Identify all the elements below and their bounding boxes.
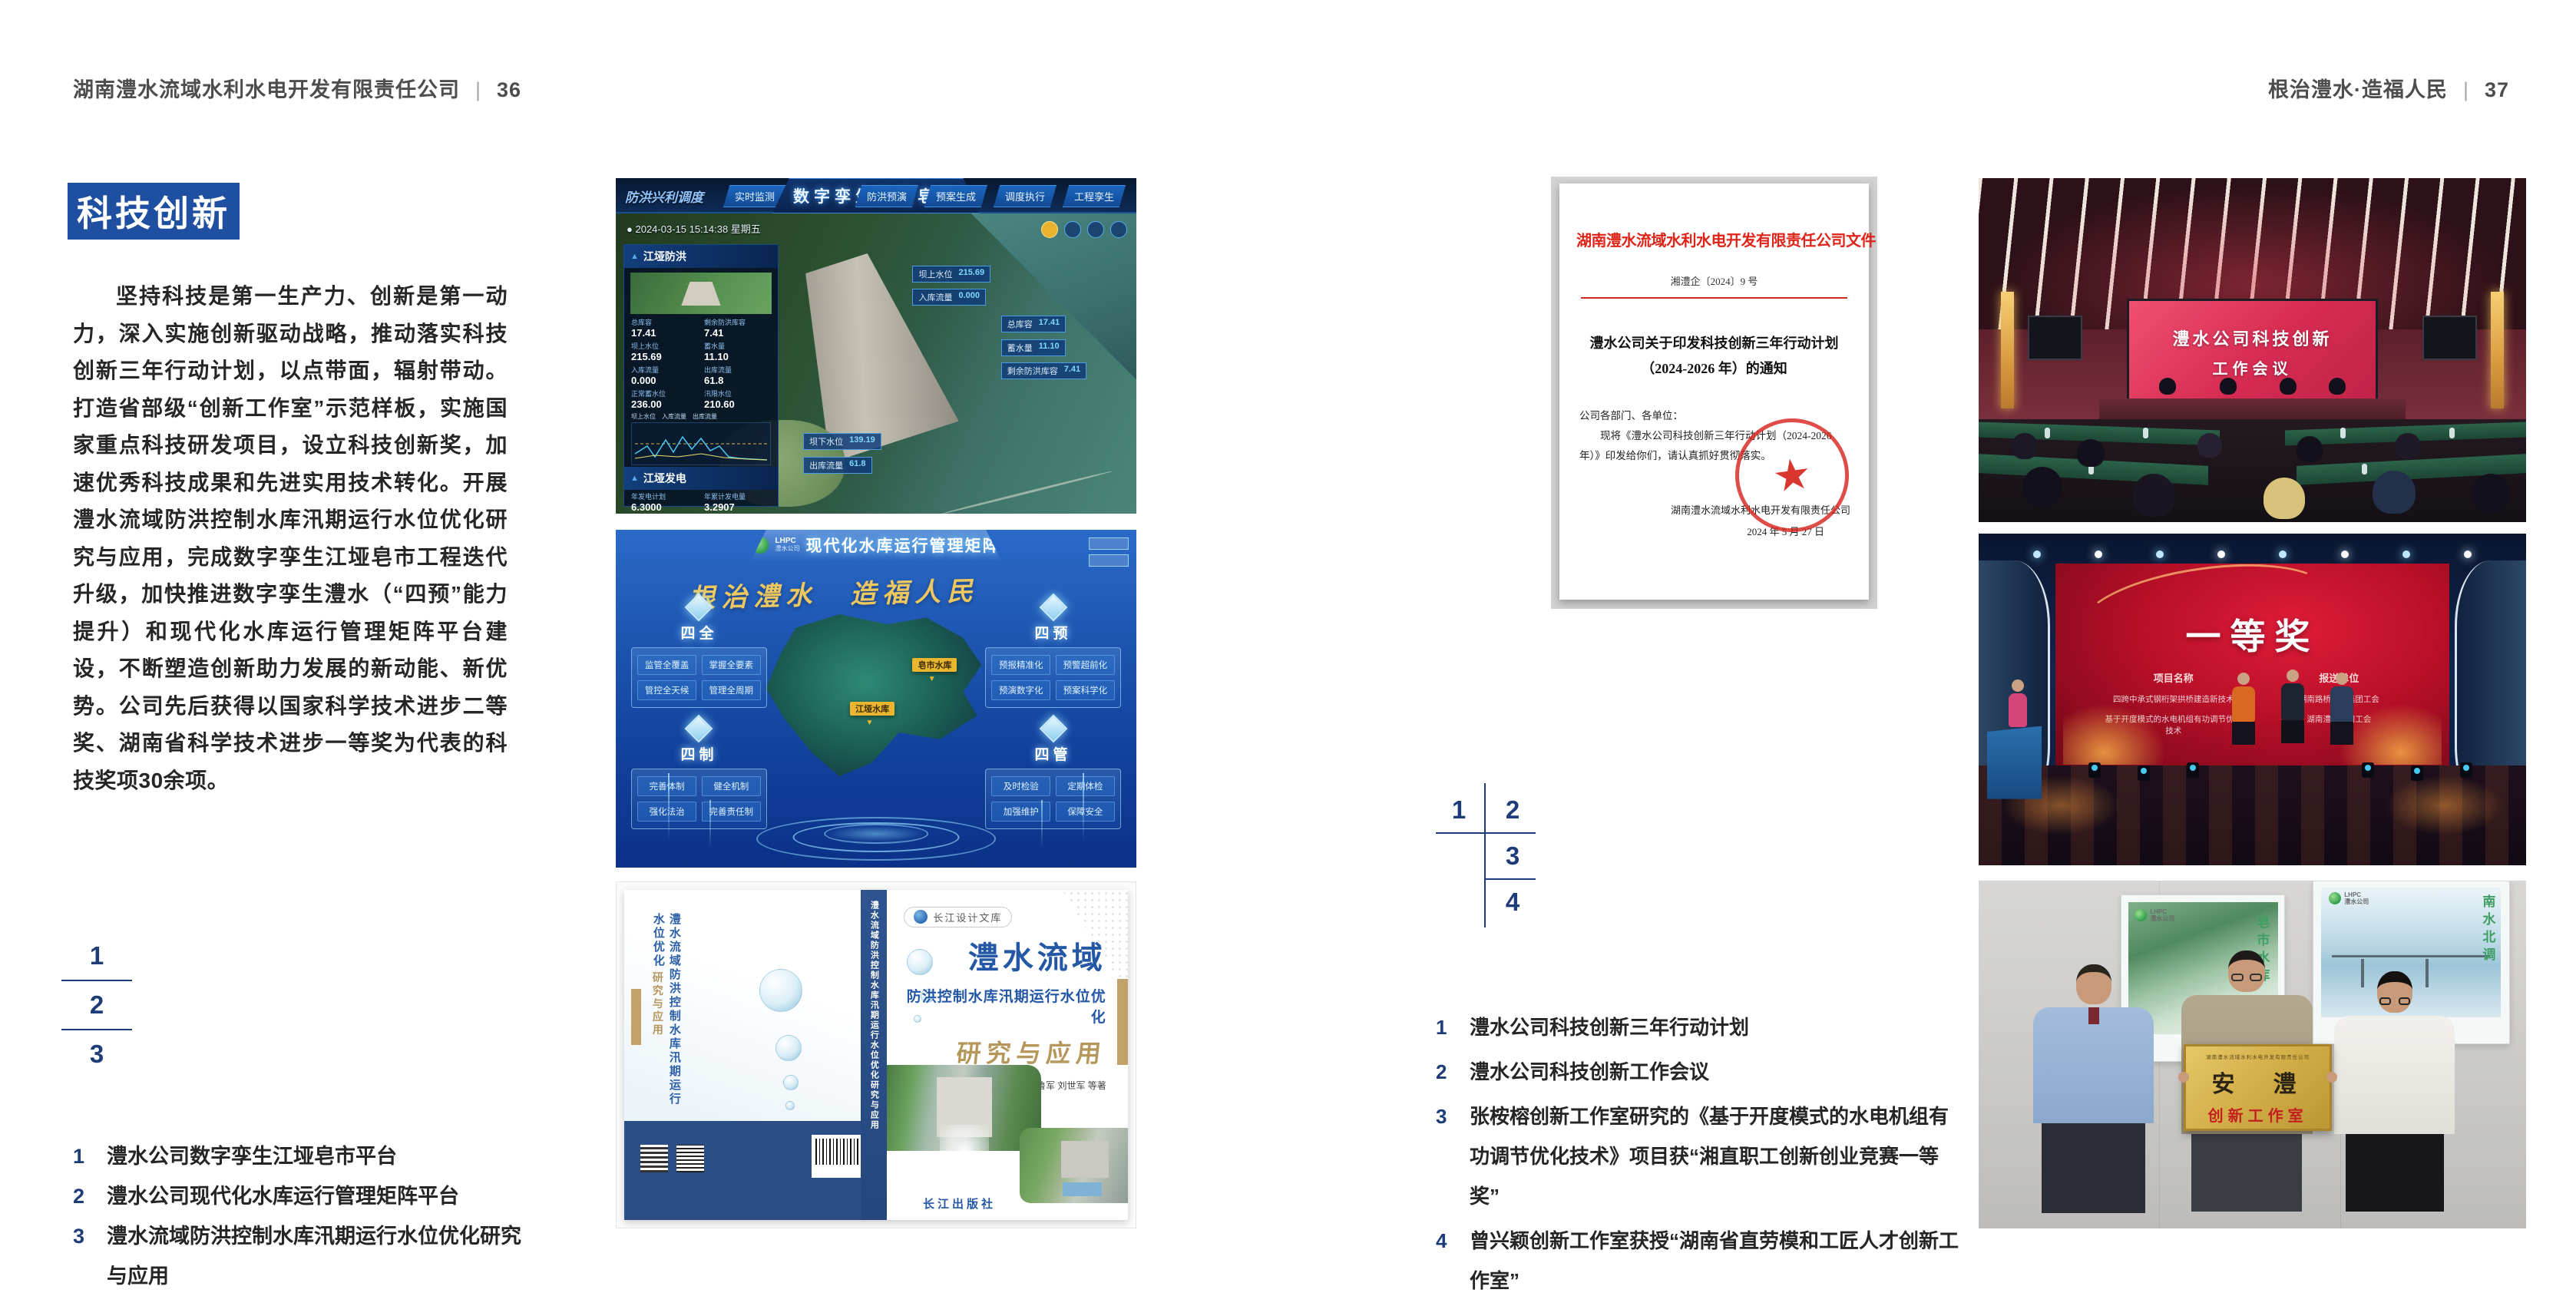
right-page-header: 根治澧水·造福人民|37 [2268,73,2509,103]
host-podium [1987,726,2042,799]
book-spine: 澧水流域防洪控制水库汛期运行水位优化研究与应用 [861,890,887,1220]
left-page-header: 湖南澧水流域水利水电开发有限责任公司|36 [73,73,521,103]
caption-number: 1 [1436,1007,1470,1047]
matrix-group-sizhi: 四制 完善体制 健全机制 强化法治 完善责任制 [631,719,766,829]
audience-head [2012,433,2038,459]
legend-item: 坝上水位 [631,412,656,421]
column-header: 项目名称 [2102,670,2244,685]
group-panel: 完善体制 健全机制 强化法治 完善责任制 [631,769,766,829]
person-left [2033,964,2154,1228]
plaque-name: 安 澧 [2186,1065,2330,1099]
lit-pillar [2001,292,2014,408]
light-pillar [709,800,711,848]
stat-cell: 汛限水位210.60 [704,388,771,410]
toolbar-icons [1041,221,1127,238]
awardee-head [2336,673,2348,685]
publisher-logo: 长江出版社 [887,1195,1031,1212]
matrix-header-plate: LHPC 澧水公司 现代化水库运行管理矩阵 [751,530,1000,560]
left-figure-number-key: 1 2 3 [61,941,132,1069]
bubble-decoration [785,1101,795,1110]
dashboard-timestamp: ● 2024-03-15 15:14:38 星期五 [627,221,761,236]
header-button [1089,537,1129,550]
flood-panel-title: 江垭防洪 [643,249,686,264]
power-panel-title: 江垭发电 [643,471,686,486]
brochure-spread: 湖南澧水流域水利水电开发有限责任公司|36 根治澧水·造福人民|37 科技创新 … [0,0,2576,1306]
page-number-36: 36 [497,78,521,101]
stat-cell: 坝上水位215.69 [631,341,698,362]
light-pillar [1083,773,1084,841]
stat-cell: 出库流量61.8 [704,365,771,386]
caption-text: 澧水公司科技创新工作会议 [1470,1052,1709,1092]
lhpc-logo-icon [2329,892,2341,904]
caption-number: 3 [73,1216,107,1296]
caption-text: 曾兴颖创新工作室获授“湖南省直劳模和工匠人才创新工作室” [1470,1221,1966,1301]
back-title-sub: 研究与应用 [652,972,664,1037]
document-page: 湖南澧水流域水利水电开发有限责任公司文件 湘澧企〔2024〕9 号 澧水公司关于… [1559,184,1869,600]
spotlight-fixture [2138,765,2150,781]
figure-divider [61,980,132,981]
water-level-mini-chart [631,422,771,465]
glasses-icon [2231,974,2244,981]
stat-cell: 总库容17.41 [631,317,698,339]
mode-label: 防洪兴利调度 [625,187,703,206]
info-chip: 入库流量0.000 [912,289,986,306]
spotlight-fixture [2088,762,2101,778]
lhpc-logo-text: LHPC 澧水公司 [775,537,800,553]
group-item: 管理全周期 [702,680,761,700]
wall-tv [2028,316,2082,360]
group-item: 及时检验 [991,776,1050,796]
spotlight-fixture [2187,762,2199,778]
screen-gold-glow [2063,703,2165,765]
page-number-37: 37 [2485,78,2509,101]
legend-item: 入库流量 [662,412,686,421]
floor-glow [2384,775,2505,835]
audience-head [2395,433,2421,459]
caption-row: 2 澧水公司现代化水库运行管理矩阵平台 [73,1176,541,1216]
document-red-rule [1581,297,1847,299]
glasses-icon [2250,974,2262,981]
pin-icon: ▼ [865,719,873,727]
person-right-pants [2346,1134,2445,1212]
group-item: 预演数字化 [991,680,1050,700]
series-logo-icon [914,910,928,924]
caption-text: 澧水公司数字孪生江垭皂市平台 [107,1136,397,1176]
group-item: 保障安全 [1056,802,1115,822]
audience-head [2264,478,2305,519]
right-figure-number-key: 1 2 3 4 [1436,783,1559,933]
lhpc-logo: LHPC澧水公司 [2329,891,2369,905]
bubble-decoration [759,969,802,1012]
glasses-icon [2399,997,2410,1005]
person-left-shirt [2033,1007,2154,1123]
person-center-pants [2191,1134,2302,1212]
bubble-decoration [775,1035,802,1061]
group-item: 预案科学化 [1056,680,1115,700]
figure-number: 1 [1443,795,1474,825]
stat-cell: 蓄水量11.10 [704,341,771,362]
caption-row: 2 澧水公司科技创新工作会议 [1436,1052,1966,1092]
book-cover-photo: 澧水流域防洪控制水库汛期运行水位优化 研究与应用 澧水流域防洪控制水库汛期运行水… [616,881,1136,1228]
back-cover-title: 澧水流域防洪控制水库汛期运行水位优化 研究与应用 [650,913,683,1111]
flood-stats-grid: 总库容17.41 剩余防洪库容7.41 坝上水位215.69 蓄水量11.10 … [624,317,778,410]
awardee-body [2330,686,2353,722]
figure-number: 3 [1497,841,1528,871]
stage-light [2156,551,2164,558]
group-item: 定期体检 [1056,776,1115,796]
host-head [2012,679,2024,692]
audience-head [2022,467,2062,507]
person-left-pants [2042,1123,2145,1213]
cover-powerhouse-photo [1020,1128,1128,1204]
matrix-group-siguan: 四管 及时检验 定期体检 加强维护 保障安全 [985,719,1120,829]
info-chip: 剩余防洪库容7.41 [1001,362,1086,379]
audience-head [2197,433,2222,458]
header-separator: | [2463,78,2469,101]
digital-twin-dashboard-photo: 防洪兴利调度 实时监测 洪水预报 防洪预警 数字孪生江垭皂市 防洪预演 预案生成… [616,178,1136,514]
dot-icon: ● [627,223,633,235]
seal-star-icon: ★ [1770,448,1815,503]
panel-icon: ▲ [630,474,639,483]
light-pillar [1041,800,1043,848]
presenter-suit [2280,670,2306,743]
person-right [2334,971,2455,1228]
stage-light [2217,551,2225,558]
wall-tv [2422,316,2477,360]
caption-text: 澧水公司科技创新三年行动计划 [1470,1007,1749,1047]
spotlight-fixture [2362,762,2374,778]
audience-head [2132,474,2175,517]
flood-panel-header: ▲ 江垭防洪 [624,245,778,268]
slogan: 根治澧水·造福人民 [2268,78,2448,101]
stage-light [2279,551,2287,558]
caption-number: 3 [1436,1096,1470,1216]
stage-light [2464,551,2472,558]
caption-text: 澧水公司现代化水库运行管理矩阵平台 [107,1176,459,1216]
group-panel: 预报精准化 预警超前化 预演数字化 预案科学化 [985,647,1120,708]
group-title: 四全 [631,622,766,643]
stage-light [2033,551,2041,558]
qr-code [676,1145,704,1172]
caption-number: 2 [73,1176,107,1216]
info-chip: 出库流量61.8 [803,457,871,474]
front-cover-tan-bar [1117,979,1128,1065]
tab-flood-rehearsal: 防洪预演 [855,185,918,207]
audience-head [2472,474,2510,512]
presenter-legs [2281,720,2304,743]
meeting-photo: 澧水公司科技创新 工作会议 [1979,178,2526,522]
presidium-person [2159,378,2176,395]
group-icon [1039,715,1067,743]
stat-cell: 正常蓄水位236.00 [631,388,698,410]
layers-icon [1064,221,1081,238]
locate-icon [1087,221,1104,238]
awardee-body [2232,686,2255,722]
info-chip: 蓄水量11.10 [1001,339,1066,356]
stage-floor [1979,765,2526,865]
host-person [2006,679,2029,727]
tab-project-twin: 工程孪生 [1063,185,1126,207]
awardee-legs [2330,722,2353,745]
group-item: 掌握全要素 [702,655,761,675]
stat-cell: 年发电计划6.3000 [631,491,698,513]
caption-row: 3 澧水流域防洪控制水库汛期运行水位优化研究与应用 [73,1216,541,1296]
alarm-icon [1110,221,1127,238]
lhpc-logo-label: LHPC澧水公司 [2344,891,2369,905]
group-icon [685,715,713,743]
header-separator: | [475,78,481,101]
stat-cell: 剩余防洪库容7.41 [704,317,771,339]
chart-legend: 坝上水位 入库流量 出库流量 [624,410,778,421]
group-icon [1039,593,1067,622]
info-chip: 总库容17.41 [1001,316,1066,332]
screen-line2: 工作会议 [2212,356,2292,379]
matrix-platform-photo: LHPC 澧水公司 现代化水库运行管理矩阵 根治澧水 造福人民 皂市水库 ▼ 江… [616,530,1136,868]
tab-realtime-monitoring: 实时监测 [723,185,786,207]
caption-row: 1 澧水公司科技创新三年行动计划 [1436,1007,1966,1047]
power-stats-grid: 年发电计划6.3000 年累计发电量3.2907 月累计发电量3259.21 当… [624,490,778,514]
series-name: 长江设计文库 [933,910,1002,924]
spotlight-fixture [2411,765,2423,781]
figure-number: 2 [1497,795,1528,825]
award-ceremony-photo: 一等奖 项目名称 四跨中承式钢桁架拱桥建造新技术 基于开度模式的水电机组有功调节… [1979,534,2526,865]
back-cover-tan-block [631,989,640,1045]
group-item: 预警超前化 [1056,655,1115,675]
figure-divider-vertical [1484,783,1486,927]
tab-dispatch-execution: 调度执行 [994,185,1057,207]
document-title-line2: （2024-2026 年）的通知 [1576,356,1852,382]
group-title: 四制 [631,743,766,764]
document-title-line1: 澧水公司关于印发科技创新三年行动计划 [1576,331,1852,356]
matrix-group-siyu: 四预 预报精准化 预警超前化 预演数字化 预案科学化 [985,597,1120,708]
stage-light [2341,551,2349,558]
poster-right-title: 南水北调 [2478,894,2497,965]
figure-divider [1436,832,1536,834]
bubble-decoration [783,1075,799,1090]
book-spread: 澧水流域防洪控制水库汛期运行水位优化 研究与应用 澧水流域防洪控制水库汛期运行水… [624,890,1128,1220]
document-title: 澧水公司关于印发科技创新三年行动计划 （2024-2026 年）的通知 [1576,331,1852,382]
screen-line1: 澧水公司科技创新 [2172,326,2332,350]
thumbnail-dam-shape [681,282,721,306]
person-left-collar [2088,1007,2099,1024]
lhpc-logo: LHPC澧水公司 [2135,908,2174,922]
awardee-legs [2232,722,2255,745]
group-title: 四预 [985,622,1120,643]
group-panel: 及时检验 定期体检 加强维护 保障安全 [985,769,1120,829]
spotlight-fixture [2460,762,2472,778]
audience-head [2297,436,2323,462]
stage-light [2402,551,2410,558]
timestamp-text: 2024-03-15 15:14:38 星期五 [635,223,760,235]
bridge-deck [2332,955,2490,957]
caption-number: 4 [1436,1221,1470,1301]
book-title-line3: 研究与应用 [892,1034,1108,1070]
caption-text: 澧水流域防洪控制水库汛期运行水位优化研究与应用 [107,1216,541,1296]
book-title-line1: 澧水流域 [894,933,1106,977]
user-icon [1041,221,1058,238]
glasses-icon [2379,997,2391,1005]
water-bottle [2143,428,2148,438]
person-right-shirt [2334,1016,2455,1134]
water-bottle [2449,428,2455,438]
figure-divider [1484,878,1536,880]
water-bottle [2340,428,2346,438]
pin-icon: ▼ [928,675,936,683]
water-bottle [2045,428,2050,438]
caption-row: 4 曾兴颖创新工作室获授“湖南省直劳模和工匠人才创新工作室” [1436,1221,1966,1301]
hand [2326,1072,2337,1083]
group-item: 强化法治 [637,802,696,822]
group-item: 管控全天候 [637,680,696,700]
map-label-jiangya: 江垭水库 [850,702,894,716]
presenter-body [2281,683,2304,720]
caption-row: 1 澧水公司数字孪生江垭皂市平台 [73,1136,541,1176]
lhpc-logo-label: LHPC澧水公司 [2150,908,2174,922]
plaque-photo: LHPC澧水公司 皂市水库 LHPC澧水公司 南水北调 [1979,881,2526,1228]
award-title: 一等奖 [2055,609,2449,660]
section-paragraph: 坚持科技是第一生产力、创新是第一动力，深入实施创新驱动战略，推动落实科技创新三年… [73,278,508,799]
caption-row: 3 张桉榕创新工作室研究的《基于开度模式的水电机组有功调节优化技术》项目获“湘直… [1436,1096,1966,1216]
presidium-person [2220,378,2237,395]
awardee-navy [2329,673,2355,745]
series-logo: 长江设计文库 [904,907,1012,927]
stat-cell: 入库流量0.000 [631,365,698,386]
presidium-person [2329,378,2346,395]
map-label-zaoshi: 皂市水库 [912,658,957,672]
figure-divider [61,1029,132,1030]
powerhouse-building [1063,1182,1102,1196]
right-tab-group: 防洪预演 预案生成 调度执行 工程孪生 [855,185,1126,207]
info-chip: 坝下水位139.19 [803,433,881,450]
section-title: 科技创新 [68,183,240,240]
barcode-stripes [815,1139,860,1165]
group-panel: 监管全覆盖 掌握全要素 管控全天候 管理全周期 [631,647,766,708]
presidium-person [2280,378,2297,395]
person-center-head [2228,951,2265,992]
left-captions: 1 澧水公司数字孪生江垭皂市平台 2 澧水公司现代化水库运行管理矩阵平台 3 澧… [73,1136,541,1296]
document-red-header: 湖南澧水流域水利水电开发有限责任公司文件 [1576,228,1852,250]
group-icon [685,593,713,622]
person-right-head [2377,971,2412,1013]
figure-number: 2 [61,990,132,1020]
group-item: 监管全覆盖 [637,655,696,675]
header-button [1089,554,1129,567]
info-chip: 坝上水位215.69 [912,266,990,283]
official-document-photo: 湖南澧水流域水利水电开发有限责任公司文件 湘澧企〔2024〕9 号 澧水公司关于… [1551,177,1877,609]
cover-dam-photo [887,1065,1041,1151]
caption-number: 2 [1436,1052,1470,1092]
audience-head [2373,471,2416,514]
stat-cell: 年累计发电量3.2907 [704,491,771,513]
audience-head [2077,439,2105,467]
powerhouse-dam [1061,1141,1109,1177]
presenter-head [2287,670,2299,682]
caption-number: 1 [73,1136,107,1176]
barcode [812,1135,864,1178]
group-item: 完善体制 [637,776,696,796]
flood-sidebar-panel: ▲ 江垭防洪 总库容17.41 剩余防洪库容7.41 坝上水位215.69 蓄水… [623,244,779,507]
right-captions: 1 澧水公司科技创新三年行动计划 2 澧水公司科技创新工作会议 3 张桉榕创新工… [1436,1007,1966,1301]
light-pillar [668,773,670,841]
spine-title: 澧水流域防洪控制水库汛期运行水位优化研究与应用 [868,901,880,1220]
plaque-subtitle: 创新工作室 [2186,1103,2330,1126]
power-panel-header: ▲ 江垭发电 [624,467,778,490]
book-front-cover: 长江设计文库 澧水流域 防洪控制水库汛期运行水位优化 研究与应用 洪兴骏 沈坤民… [887,890,1128,1220]
panel-icon: ▲ [630,252,639,261]
figure-number: 3 [61,1040,132,1069]
dashboard-top-bar: 防洪兴利调度 实时监测 洪水预报 防洪预警 数字孪生江垭皂市 防洪预演 预案生成… [616,178,1136,213]
document-number: 湘澧企〔2024〕9 号 [1576,273,1852,288]
stage-light [2095,551,2102,558]
matrix-group-siquan: 四全 监管全覆盖 掌握全要素 管控全天候 管理全周期 [631,597,766,708]
back-cover-bottom-band [624,1121,887,1220]
group-title: 四管 [985,743,1120,764]
legend-item: 出库流量 [693,412,717,421]
caption-text: 张桉榕创新工作室研究的《基于开度模式的水电机组有功调节优化技术》项目获“湘直职工… [1470,1096,1966,1216]
host-body [2009,693,2027,727]
lit-pillar [2491,292,2504,408]
figure-number: 4 [1497,888,1528,917]
company-name: 湖南澧水流域水利水电开发有限责任公司 [73,78,460,101]
awardee-head [2237,673,2250,685]
tab-plan-generation: 预案生成 [924,185,987,207]
qr-code [640,1145,668,1172]
dam-thumbnail [630,273,772,314]
stage-lights-row [2033,551,2471,564]
group-item: 健全机制 [702,776,761,796]
matrix-title: 现代化水库运行管理矩阵 [806,534,1000,557]
cover-dam-spray [940,1125,989,1151]
water-bottle [2362,464,2367,474]
awardee-orange [2230,673,2257,745]
person-left-head [2076,964,2111,1004]
figure-number: 1 [61,941,132,970]
book-title-line2: 防洪控制水库汛期运行水位优化 [894,985,1106,1027]
plaque-org-line: 湖南澧水流域水利水电开发有限责任公司 [2186,1053,2330,1060]
lhpc-logo-icon [2135,909,2147,921]
group-item: 预报精准化 [991,655,1050,675]
innovation-studio-plaque: 湖南澧水流域水利水电开发有限责任公司 安 澧 创新工作室 [2184,1044,2332,1131]
